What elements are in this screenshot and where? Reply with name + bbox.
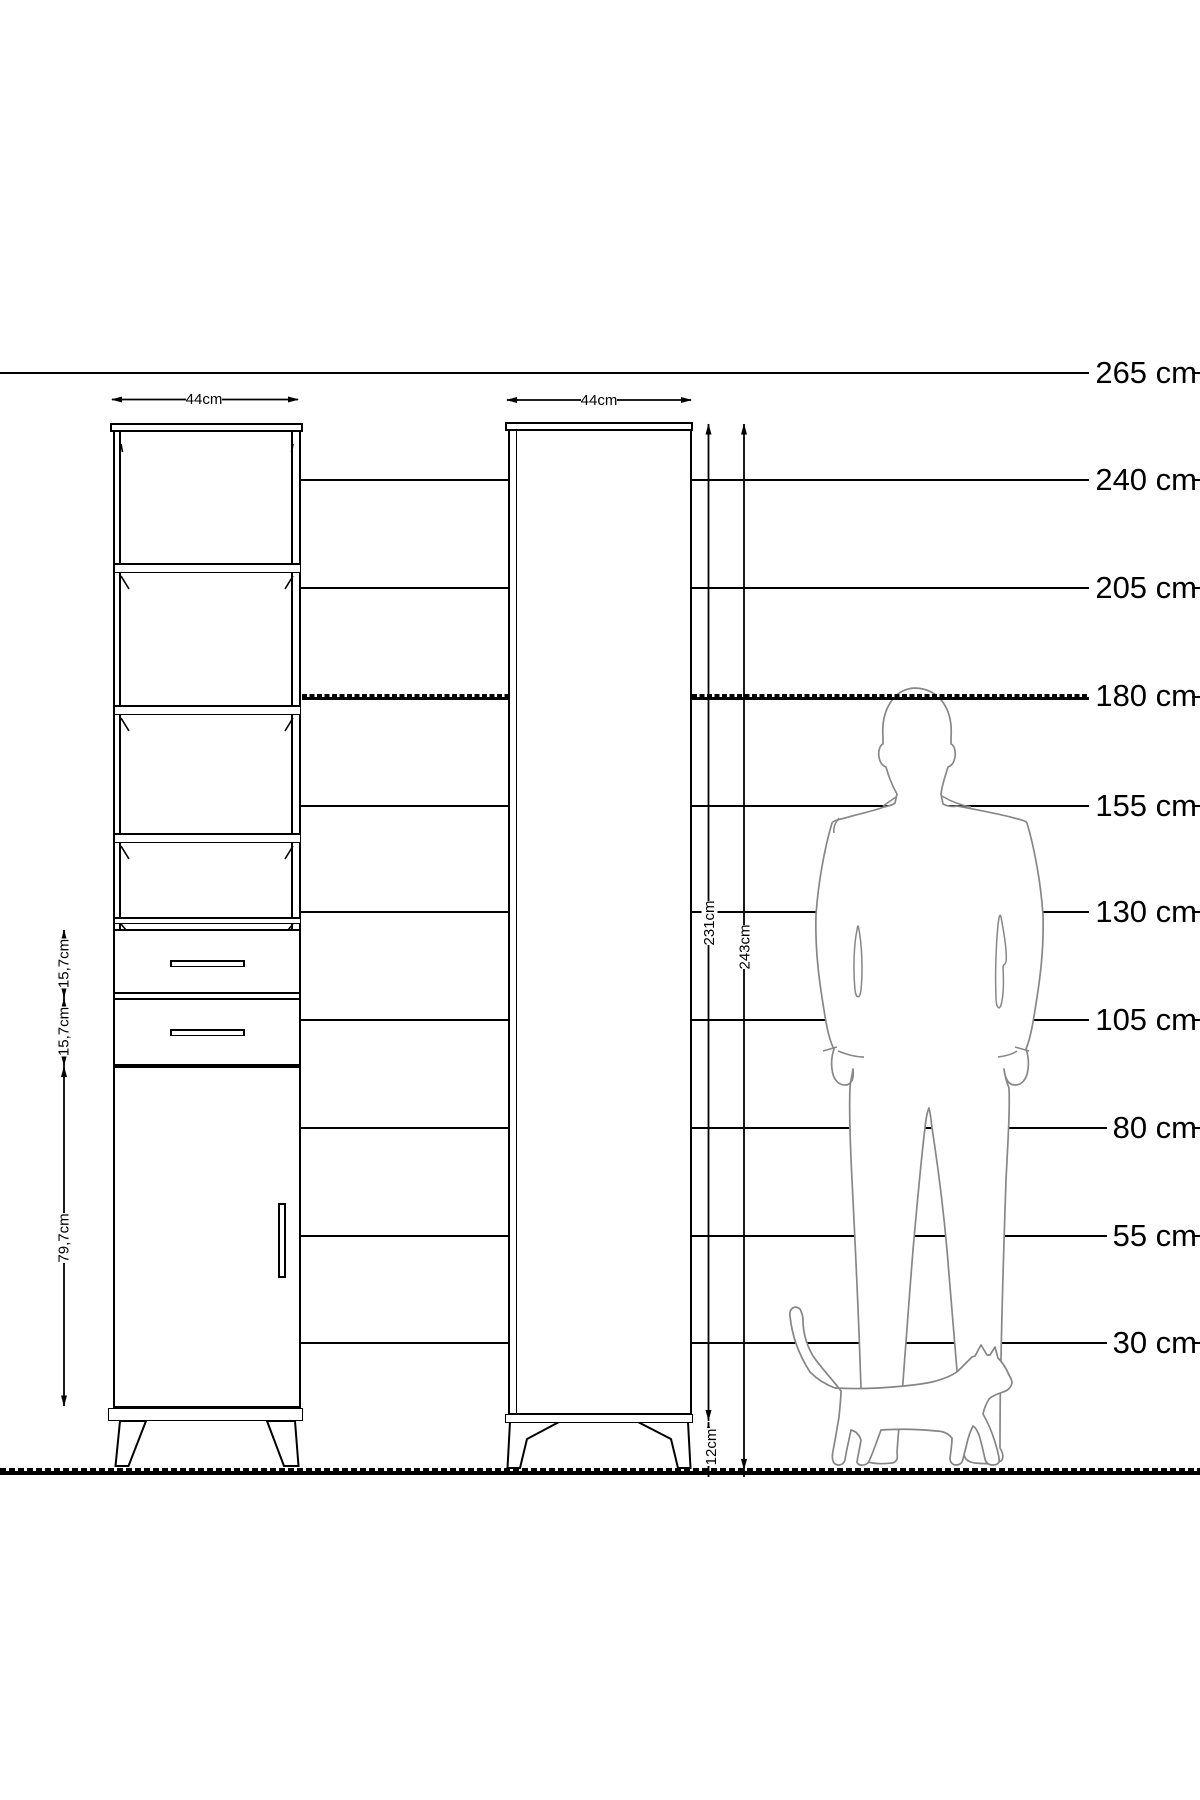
svg-text:12cm: 12cm — [703, 1429, 720, 1466]
svg-text:79,7cm: 79,7cm — [56, 1213, 73, 1262]
svg-text:44cm: 44cm — [581, 392, 618, 409]
svg-text:231cm: 231cm — [701, 900, 718, 945]
svg-text:243cm: 243cm — [737, 924, 754, 969]
svg-text:44cm: 44cm — [186, 391, 223, 408]
svg-text:15,7cm: 15,7cm — [56, 1007, 73, 1056]
svg-text:15,7cm: 15,7cm — [56, 939, 73, 988]
